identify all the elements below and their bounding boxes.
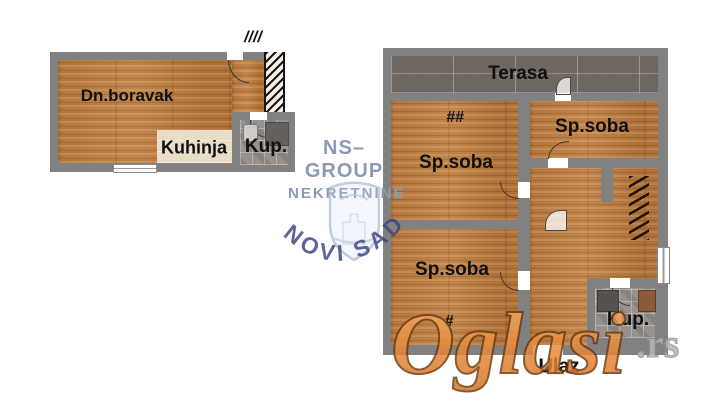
right-top-wall bbox=[383, 48, 668, 56]
right-bedroom1-label: Sp.soba bbox=[419, 152, 493, 174]
right-bedroom2-label: Sp.soba bbox=[555, 116, 629, 138]
left-kitchen-label: Kuhinja bbox=[161, 138, 227, 159]
right-bedroom2-wall-a bbox=[530, 158, 548, 168]
floorplan-canvas: Dn.boravak Kuhinja Kup. //// Terasa ## S… bbox=[0, 0, 712, 402]
left-top-wall-a bbox=[50, 52, 227, 60]
city-shield-icon bbox=[330, 183, 379, 260]
right-terrace-door-leaf bbox=[556, 77, 571, 95]
right-staircase-hatch bbox=[629, 176, 649, 240]
right-bedroom3-label: Sp.soba bbox=[415, 259, 489, 281]
right-central-wall-a bbox=[518, 101, 530, 182]
right-terrace-label: Terasa bbox=[488, 63, 548, 85]
right-entrance-label: Ulaz bbox=[538, 356, 579, 379]
right-right-wall-a bbox=[658, 48, 668, 247]
right-central-wall-b bbox=[518, 198, 530, 271]
left-staircase-hatch bbox=[264, 52, 285, 112]
right-bottom-wall-b bbox=[563, 345, 668, 355]
left-stairs-mark: //// bbox=[244, 29, 262, 47]
right-entrance-door-gap bbox=[533, 345, 563, 355]
right-terrace-wall-b bbox=[571, 93, 668, 101]
right-bottom-wall-a bbox=[383, 345, 533, 355]
right-bedroom3-door-gap bbox=[518, 271, 530, 290]
left-bath-label: Kup. bbox=[245, 136, 287, 158]
right-bath-door-gap bbox=[610, 278, 630, 288]
left-living-window bbox=[113, 164, 157, 173]
left-living-label: Dn.boravak bbox=[81, 86, 174, 106]
right-central-wall-c bbox=[518, 290, 530, 355]
left-left-wall bbox=[50, 52, 58, 172]
right-hall-stub-wall bbox=[601, 168, 613, 202]
right-bedroom1-door-gap bbox=[518, 182, 530, 198]
left-top-wall-b bbox=[243, 52, 264, 60]
right-bedroom2-door-gap bbox=[548, 158, 568, 168]
left-bath-door-gap bbox=[250, 112, 267, 120]
right-bedroom3-floor bbox=[391, 229, 518, 345]
right-bedrooms-divider-wall bbox=[383, 220, 518, 229]
right-terrace-wall-a bbox=[383, 93, 555, 101]
right-bedroom2-wall-b bbox=[568, 158, 668, 168]
left-entry-door-gap bbox=[227, 52, 243, 60]
right-bedroom1-mark: ## bbox=[446, 109, 464, 127]
right-hall-window bbox=[657, 247, 670, 284]
right-bedroom3-mark: # bbox=[445, 313, 454, 331]
right-bath-label: Kup. bbox=[607, 309, 649, 331]
